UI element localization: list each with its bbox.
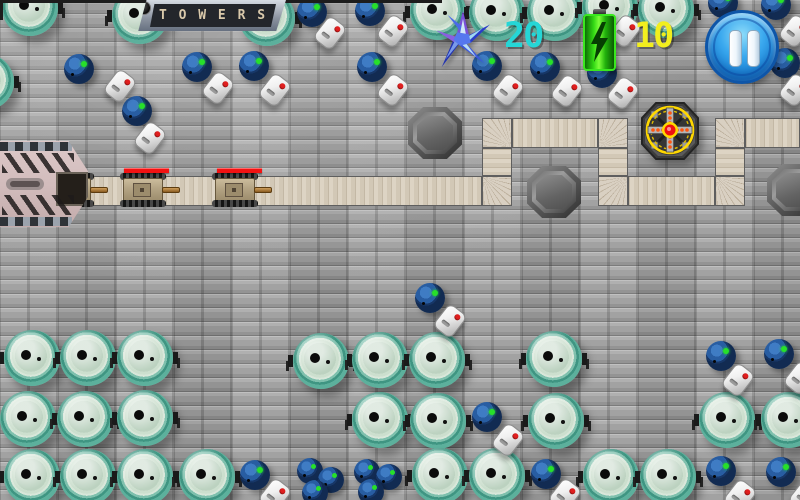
tank-gun <box>90 187 108 193</box>
battery-icon <box>583 14 616 71</box>
pause-button[interactable] <box>705 10 779 84</box>
game-viewport: T O W E R S 20 10 <box>0 0 800 500</box>
enemy-layer <box>0 0 800 500</box>
enemy-tank <box>120 173 180 207</box>
towers-sign: T O W E R S <box>136 0 286 31</box>
building-armor-strip <box>0 142 72 151</box>
tank-gun <box>162 187 180 193</box>
enemy-health-bar <box>124 168 169 173</box>
tank-tread <box>120 200 166 207</box>
building-armor-strip <box>0 217 72 226</box>
pause-icon <box>729 30 742 67</box>
enemy-health-bar <box>217 168 262 173</box>
building-hazard-stripes <box>2 153 74 173</box>
tank-gun <box>254 187 272 193</box>
towers-sign-label: T O W E R S <box>150 4 276 27</box>
blade-tower-icon <box>638 99 702 163</box>
blade-tower[interactable] <box>638 99 702 163</box>
energy-counter: 10 <box>634 16 672 56</box>
building-vent <box>6 178 44 190</box>
screen-edge-strip <box>0 0 3 20</box>
shuriken-counter: 20 <box>504 16 542 56</box>
tank-turret <box>225 183 243 197</box>
building-hazard-stripes <box>2 195 74 215</box>
spawn-building <box>0 141 88 227</box>
tank-turret <box>133 183 151 197</box>
tank-tread <box>212 200 258 207</box>
pause-icon <box>747 30 760 67</box>
enemy-tank <box>212 173 272 207</box>
shuriken-icon <box>434 11 492 69</box>
